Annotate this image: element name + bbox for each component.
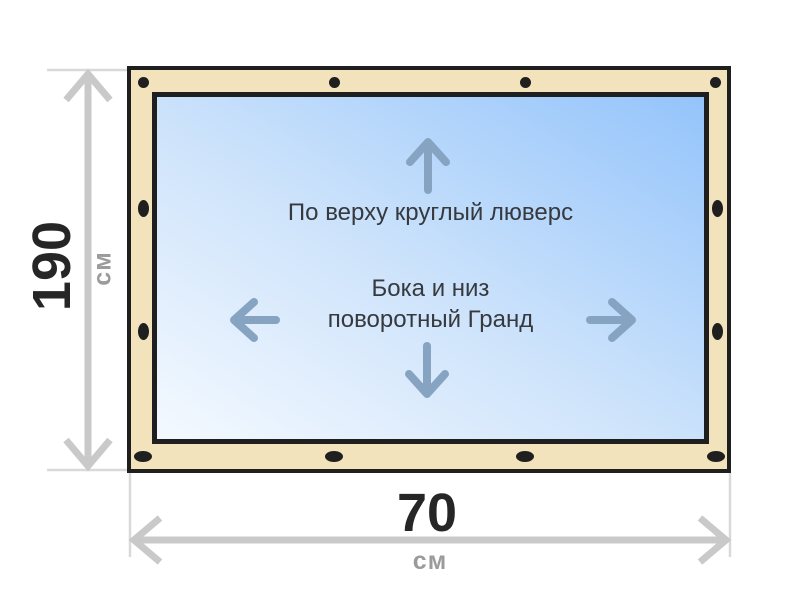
grommet-bottom-1-icon — [134, 451, 152, 462]
grommet-bottom-4-icon — [707, 451, 725, 462]
grommet-left-1-icon — [138, 200, 149, 217]
sides-bottom-note: Бока и низ поворотный Гранд — [157, 273, 704, 335]
width-unit: см — [330, 549, 530, 574]
grommet-top-3-icon — [520, 77, 531, 88]
sides-bottom-note-line2: поворотный Гранд — [157, 304, 704, 335]
grommet-top-1-icon — [138, 77, 149, 88]
top-grommet-note: По верху круглый люверс — [157, 197, 704, 228]
grommet-bottom-2-icon — [325, 451, 343, 462]
top-grommet-note-text: По верху круглый люверс — [288, 199, 573, 226]
grommet-top-2-icon — [329, 77, 340, 88]
curtain-dimension-diagram: 190 см По верху круглый люверс Бока и ни… — [0, 0, 800, 600]
grommet-right-1-icon — [712, 200, 723, 217]
grommet-bottom-3-icon — [516, 451, 534, 462]
grommet-left-2-icon — [138, 323, 149, 340]
up-arrow-icon — [405, 136, 451, 194]
grommet-top-4-icon — [710, 77, 721, 88]
sides-bottom-note-line1: Бока и низ — [157, 273, 704, 304]
down-arrow-icon — [404, 342, 450, 400]
height-unit: см — [91, 219, 116, 319]
width-value: 70 — [327, 486, 527, 540]
height-value: 190 — [25, 166, 79, 366]
grommet-right-2-icon — [712, 323, 723, 340]
